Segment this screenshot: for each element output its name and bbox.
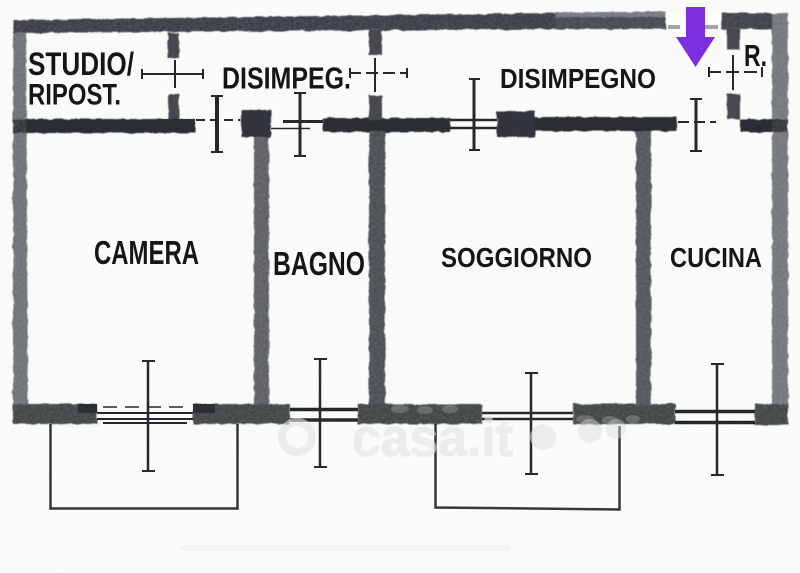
svg-text:DISIMPEG.: DISIMPEG. — [222, 61, 351, 96]
svg-text:RIPOST.: RIPOST. — [28, 79, 121, 112]
svg-text:CUCINA: CUCINA — [670, 242, 762, 273]
svg-text:R.: R. — [744, 38, 767, 73]
svg-text:CAMERA: CAMERA — [94, 234, 199, 271]
svg-text:BAGNO: BAGNO — [273, 245, 365, 282]
svg-text:SOGGIORNO: SOGGIORNO — [441, 242, 592, 273]
svg-text:casa.it: casa.it — [352, 408, 513, 468]
svg-text:DISIMPEGNO: DISIMPEGNO — [500, 63, 656, 94]
svg-text:STUDIO/: STUDIO/ — [28, 46, 134, 82]
